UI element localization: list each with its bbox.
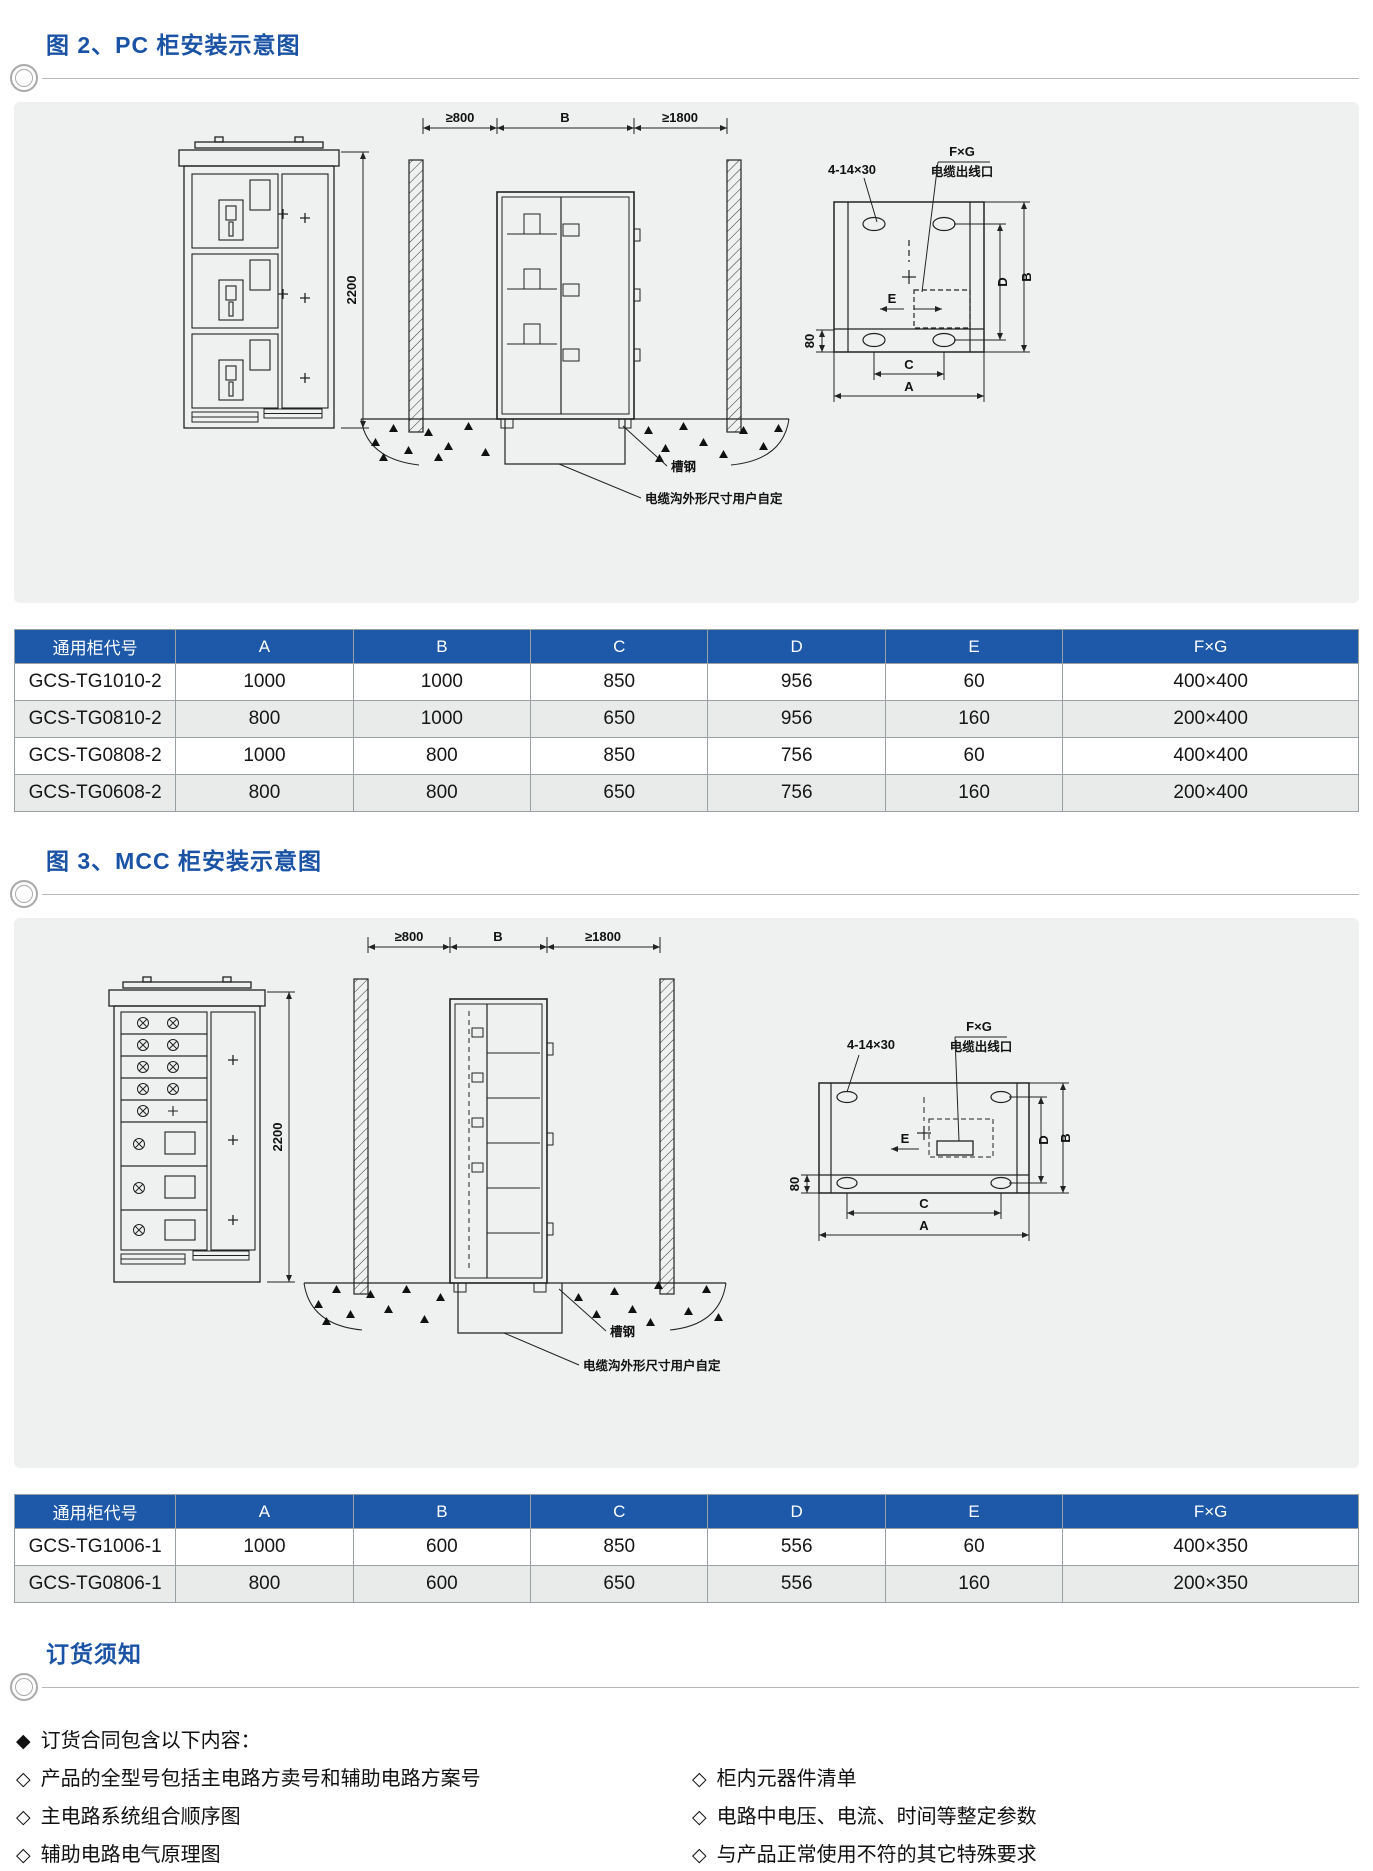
pc-plan-view: E 80 C A xyxy=(802,144,1034,402)
cabinet-code-cell: GCS-TG0810-2 xyxy=(15,701,176,738)
dimension-cell: 650 xyxy=(531,1566,708,1603)
note-row: ◆订货合同包含以下内容： xyxy=(16,1719,1359,1757)
fig2-clearance-left-label: ≥800 xyxy=(446,110,475,125)
fig3-holes-label: 4-14×30 xyxy=(847,1037,895,1052)
pc-dimensions-table: 通用柜代号 A B C D E F×G GCS-TG1010-2 1000 10… xyxy=(14,629,1359,812)
hollow-diamond-icon: ◇ xyxy=(692,1806,707,1829)
divider-line xyxy=(42,1687,1359,1688)
dimension-cell: 756 xyxy=(708,738,885,775)
fig2-diagram-panel: 2200 ≥800 B ≥1800 xyxy=(14,102,1359,603)
hollow-diamond-icon: ◇ xyxy=(16,1768,31,1791)
cabinet-code-cell: GCS-TG0808-2 xyxy=(15,738,176,775)
cabinet-code-cell: GCS-TG1006-1 xyxy=(15,1529,176,1566)
dimension-cell: 600 xyxy=(353,1566,530,1603)
fig2-dim-a-label: A xyxy=(904,379,914,394)
fig3-cable-outlet-label: 电缆出线口 xyxy=(950,1039,1013,1054)
dimension-cell: 650 xyxy=(531,701,708,738)
table-row: GCS-TG0808-2 1000 800 850 756 60 400×400 xyxy=(15,738,1359,775)
pc-front-view: 2200 xyxy=(179,137,369,428)
note-row: ◇辅助电路电气原理图 ◇与产品正常使用不符的其它特殊要求 xyxy=(16,1833,1359,1871)
cabinet-code-cell: GCS-TG0608-2 xyxy=(15,775,176,812)
dimension-cell: 850 xyxy=(531,664,708,701)
note-item-right: ◇柜内元器件清单 xyxy=(692,1762,1359,1791)
dimension-cell: 1000 xyxy=(353,664,530,701)
dimension-cell: 60 xyxy=(885,1529,1062,1566)
mcc-front-view: 2200 xyxy=(109,977,295,1282)
fig2-channel-steel-label: 槽钢 xyxy=(671,459,696,474)
divider-line xyxy=(42,78,1359,79)
ring-ornament-icon xyxy=(10,880,38,908)
notes-intro: ◆订货合同包含以下内容： xyxy=(16,1724,692,1753)
dimension-cell: 556 xyxy=(708,1529,885,1566)
mcc-installation-diagram: 2200 ≥800 B ≥1800 xyxy=(14,918,1359,1463)
dimension-cell: 850 xyxy=(531,738,708,775)
dimension-cell: 956 xyxy=(708,701,885,738)
table-header-row: 通用柜代号 A B C D E F×G xyxy=(15,630,1359,664)
note-item-right: ◇与产品正常使用不符的其它特殊要求 xyxy=(692,1838,1359,1867)
fig3-dim-e-label: E xyxy=(901,1131,910,1146)
dimension-cell: 400×400 xyxy=(1063,664,1359,701)
hollow-diamond-icon: ◇ xyxy=(692,1768,707,1791)
dimension-cell: 1000 xyxy=(176,664,353,701)
datasheet-page: 图 2、PC 柜安装示意图 xyxy=(0,0,1373,1871)
fig2-dim-e-label: E xyxy=(888,291,897,306)
fig2-width-b-label: B xyxy=(560,110,569,125)
table-header-row: 通用柜代号 A B C D E F×G xyxy=(15,1495,1359,1529)
column-header: A xyxy=(176,630,353,664)
fig3-plan-b-label: B xyxy=(1058,1133,1073,1142)
dimension-cell: 160 xyxy=(885,775,1062,812)
hollow-diamond-icon: ◇ xyxy=(16,1844,31,1867)
ordering-notes: ◆订货合同包含以下内容： ◇产品的全型号包括主电路方卖号和辅助电路方案号 ◇柜内… xyxy=(14,1719,1359,1871)
dimension-cell: 600 xyxy=(353,1529,530,1566)
dimension-cell: 1000 xyxy=(176,1529,353,1566)
dimension-cell: 850 xyxy=(531,1529,708,1566)
dimension-cell: 800 xyxy=(353,738,530,775)
fig3-dim-a-label: A xyxy=(919,1218,929,1233)
table-row: GCS-TG0608-2 800 800 650 756 160 200×400 xyxy=(15,775,1359,812)
pc-installation-diagram: 2200 ≥800 B ≥1800 xyxy=(14,102,1359,598)
dimension-cell: 200×350 xyxy=(1063,1566,1359,1603)
dimension-cell: 756 xyxy=(708,775,885,812)
dimension-cell: 1000 xyxy=(176,738,353,775)
dimension-cell: 650 xyxy=(531,775,708,812)
cabinet-code-cell: GCS-TG0806-1 xyxy=(15,1566,176,1603)
column-header: D xyxy=(708,630,885,664)
column-header: F×G xyxy=(1063,630,1359,664)
fig2-trench-note-label: 电缆沟外形尺寸用户自定 xyxy=(645,491,783,506)
fig3-channel-steel-label: 槽钢 xyxy=(610,1324,635,1339)
column-header: B xyxy=(353,1495,530,1529)
column-header: 通用柜代号 xyxy=(15,1495,176,1529)
note-row: ◇主电路系统组合顺序图 ◇电路中电压、电流、时间等整定参数 xyxy=(16,1795,1359,1833)
divider-line xyxy=(42,894,1359,895)
fig2-dim-d-label: D xyxy=(995,277,1010,286)
column-header: 通用柜代号 xyxy=(15,630,176,664)
dimension-cell: 800 xyxy=(176,1566,353,1603)
note-item-left: ◇主电路系统组合顺序图 xyxy=(16,1800,692,1829)
hollow-diamond-icon: ◇ xyxy=(16,1806,31,1829)
section-divider xyxy=(14,878,1359,912)
fig2-dim-80-label: 80 xyxy=(802,334,817,348)
table-row: GCS-TG0810-2 800 1000 650 956 160 200×40… xyxy=(15,701,1359,738)
mcc-dimensions-table: 通用柜代号 A B C D E F×G GCS-TG1006-1 1000 60… xyxy=(14,1494,1359,1603)
fig3-trench-note-label: 电缆沟外形尺寸用户自定 xyxy=(583,1358,721,1373)
column-header: C xyxy=(531,630,708,664)
dimension-cell: 556 xyxy=(708,1566,885,1603)
fig3-dim-d-label: D xyxy=(1036,1135,1051,1144)
fig3-clearance-left-label: ≥800 xyxy=(395,929,424,944)
fig2-plan-b-label: B xyxy=(1019,272,1034,281)
note-item-right: ◇电路中电压、电流、时间等整定参数 xyxy=(692,1800,1359,1829)
note-item-left: ◇产品的全型号包括主电路方卖号和辅助电路方案号 xyxy=(16,1762,692,1791)
fig2-clearance-right-label: ≥1800 xyxy=(662,110,698,125)
column-header: A xyxy=(176,1495,353,1529)
fig3-dim-c-label: C xyxy=(919,1196,929,1211)
hollow-diamond-icon: ◇ xyxy=(692,1844,707,1867)
fig3-section-title: 图 3、MCC 柜安装示意图 xyxy=(46,842,1359,876)
solid-diamond-icon: ◆ xyxy=(16,1730,31,1753)
fig2-fxg-label: F×G xyxy=(949,144,975,159)
note-row: ◇产品的全型号包括主电路方卖号和辅助电路方案号 ◇柜内元器件清单 xyxy=(16,1757,1359,1795)
dimension-cell: 800 xyxy=(176,701,353,738)
column-header: C xyxy=(531,1495,708,1529)
mcc-side-view: ≥800 B ≥1800 xyxy=(304,929,726,1373)
table-row: GCS-TG1006-1 1000 600 850 556 60 400×350 xyxy=(15,1529,1359,1566)
dimension-cell: 60 xyxy=(885,664,1062,701)
column-header: F×G xyxy=(1063,1495,1359,1529)
dimension-cell: 800 xyxy=(176,775,353,812)
dimension-cell: 200×400 xyxy=(1063,775,1359,812)
dimension-cell: 1000 xyxy=(353,701,530,738)
fig3-width-b-label: B xyxy=(493,929,502,944)
fig2-height-dim-label: 2200 xyxy=(344,276,359,305)
dimension-cell: 200×400 xyxy=(1063,701,1359,738)
fig2-cable-outlet-label: 电缆出线口 xyxy=(931,164,994,179)
column-header: E xyxy=(885,1495,1062,1529)
notes-section-title: 订货须知 xyxy=(46,1635,1359,1669)
ring-ornament-icon xyxy=(10,64,38,92)
fig3-height-dim-label: 2200 xyxy=(270,1123,285,1152)
concrete-hatch xyxy=(371,422,783,462)
dimension-cell: 800 xyxy=(353,775,530,812)
fig3-dim-80-label: 80 xyxy=(787,1177,802,1191)
section-divider xyxy=(14,62,1359,96)
column-header: E xyxy=(885,630,1062,664)
dimension-cell: 956 xyxy=(708,664,885,701)
dimension-cell: 160 xyxy=(885,701,1062,738)
fig2-holes-label: 4-14×30 xyxy=(828,162,876,177)
pc-side-view: ≥800 B ≥1800 xyxy=(361,110,789,506)
section-divider xyxy=(14,1671,1359,1705)
column-header: B xyxy=(353,630,530,664)
dimension-cell: 400×350 xyxy=(1063,1529,1359,1566)
column-header: D xyxy=(708,1495,885,1529)
fig3-diagram-panel: 2200 ≥800 B ≥1800 xyxy=(14,918,1359,1468)
note-item-left: ◇辅助电路电气原理图 xyxy=(16,1838,692,1867)
fig3-clearance-right-label: ≥1800 xyxy=(585,929,621,944)
concrete-hatch xyxy=(314,1281,723,1326)
dimension-cell: 160 xyxy=(885,1566,1062,1603)
fig2-dim-c-label: C xyxy=(904,357,914,372)
dimension-cell: 400×400 xyxy=(1063,738,1359,775)
cabinet-code-cell: GCS-TG1010-2 xyxy=(15,664,176,701)
fig3-fxg-label: F×G xyxy=(966,1019,992,1034)
ring-ornament-icon xyxy=(10,1673,38,1701)
dimension-cell: 60 xyxy=(885,738,1062,775)
mcc-plan-view: E 80 C A xyxy=(787,1019,1073,1241)
table-row: GCS-TG0806-1 800 600 650 556 160 200×350 xyxy=(15,1566,1359,1603)
table-row: GCS-TG1010-2 1000 1000 850 956 60 400×40… xyxy=(15,664,1359,701)
fig2-section-title: 图 2、PC 柜安装示意图 xyxy=(46,26,1359,60)
